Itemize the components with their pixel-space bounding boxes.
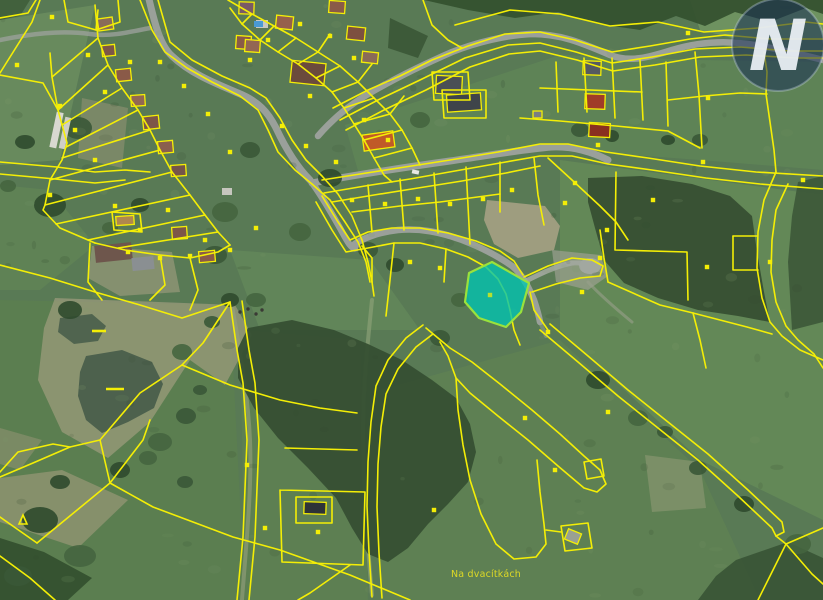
parcel-centroid-marker	[254, 226, 258, 230]
building	[346, 26, 365, 41]
parcel-centroid-marker	[606, 410, 610, 414]
parcel-centroid-marker	[158, 256, 162, 260]
parcel-centroid-marker	[48, 193, 52, 197]
parcel-centroid-marker	[334, 160, 338, 164]
parcel-centroid-marker	[352, 56, 356, 60]
parcel-centroid-marker	[86, 53, 90, 57]
parcel-centroid-marker	[350, 198, 354, 202]
building	[329, 0, 346, 13]
parcel-centroid-marker	[263, 526, 267, 530]
parcel-centroid-marker	[768, 260, 772, 264]
place-name-label: Na dvacítkách	[451, 569, 521, 580]
parcel-centroid-marker	[73, 128, 77, 132]
parcel-centroid-marker	[316, 530, 320, 534]
parcel-centroid-marker	[701, 160, 705, 164]
building	[222, 188, 232, 195]
building	[199, 250, 216, 262]
building	[361, 51, 378, 64]
parcel-centroid-marker	[188, 254, 192, 258]
parcel-centroid-marker	[553, 468, 557, 472]
parcel-centroid-marker	[298, 22, 302, 26]
building	[585, 94, 606, 110]
parcel-centroid-marker	[416, 197, 420, 201]
parcel-centroid-marker	[128, 60, 132, 64]
parcel-centroid-marker	[438, 266, 442, 270]
building	[446, 93, 481, 112]
building	[158, 140, 174, 153]
parcel-centroid-marker	[158, 60, 162, 64]
parcel-centroid-marker	[686, 31, 690, 35]
parcel-centroid-marker	[50, 15, 54, 19]
parcel-centroid-marker	[448, 202, 452, 206]
parcel-centroid-marker	[206, 112, 210, 116]
parcel-centroid-marker	[248, 58, 252, 62]
parcel-centroid-marker	[651, 198, 655, 202]
parcel-centroid-marker	[15, 63, 19, 67]
parcel-centroid-marker	[523, 416, 527, 420]
parcel-centroid-marker	[706, 96, 710, 100]
parcel-centroid-marker	[408, 260, 412, 264]
parcel-centroid-marker	[563, 201, 567, 205]
north-compass-logo: N	[732, 0, 823, 91]
parcel-centroid-marker	[362, 118, 366, 122]
parcel-centroid-marker	[546, 330, 550, 334]
parcel-centroid-marker	[280, 124, 284, 128]
parcel-centroid-marker	[596, 143, 600, 147]
parcel-centroid-marker	[103, 90, 107, 94]
parcel-centroid-marker	[580, 290, 584, 294]
building	[116, 215, 135, 225]
parcel-centroid-marker	[481, 197, 485, 201]
parcel-centroid-marker	[203, 238, 207, 242]
building	[254, 21, 263, 27]
parcel-centroid-marker	[328, 34, 332, 38]
building	[304, 502, 326, 515]
parcel-centroid-marker	[705, 265, 709, 269]
parcel-centroid-marker	[58, 104, 62, 108]
cadastral-map[interactable]: Na dvacítkách N	[0, 0, 823, 600]
parcel-centroid-marker	[138, 228, 142, 232]
parcel-centroid-marker	[801, 178, 805, 182]
parcel-centroid-marker	[93, 158, 97, 162]
parcel-centroid-marker	[126, 250, 130, 254]
parcel-centroid-marker	[266, 38, 270, 42]
parcel-centroid-marker	[598, 256, 602, 260]
parcel-centroid-marker	[386, 138, 390, 142]
building	[171, 164, 187, 176]
parcel-centroid-marker	[228, 248, 232, 252]
parcel-centroid-marker	[166, 208, 170, 212]
building	[245, 39, 261, 52]
parcel-centroid-marker	[308, 94, 312, 98]
parcel-centroid-marker	[432, 508, 436, 512]
parcel-centroid-marker	[182, 84, 186, 88]
parcel-centroid-marker	[573, 181, 577, 185]
parcel-centroid-marker	[228, 150, 232, 154]
map-viewport[interactable]: Na dvacítkách N	[0, 0, 823, 600]
parcel-centroid-marker	[510, 188, 514, 192]
building	[131, 95, 146, 107]
parcel-centroid-marker	[304, 144, 308, 148]
building	[131, 256, 154, 271]
parcel-centroid-marker	[245, 463, 249, 467]
north-letter-icon: N	[749, 5, 808, 87]
building	[533, 111, 542, 118]
parcel-centroid-marker	[113, 204, 117, 208]
parcel-centroid-marker	[605, 228, 609, 232]
parcel-centroid-marker	[383, 202, 387, 206]
